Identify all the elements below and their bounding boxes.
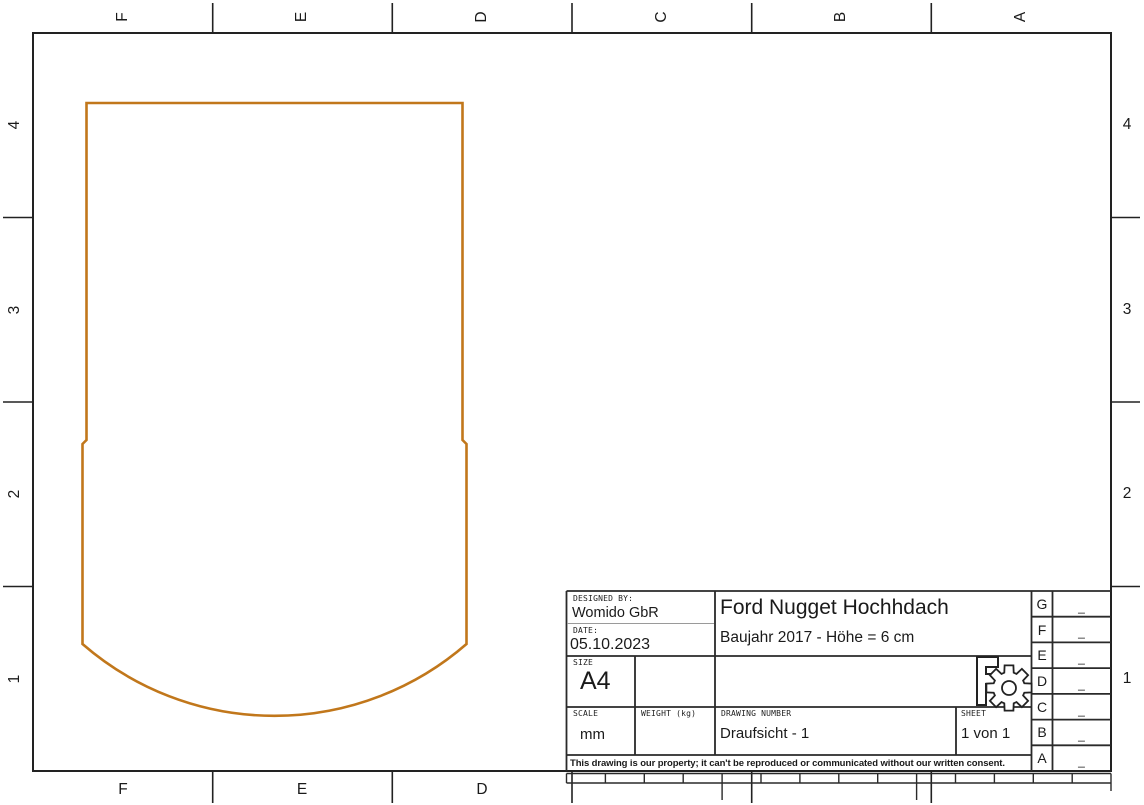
revision-row-dash: _ <box>1053 720 1111 746</box>
revision-row-dash: _ <box>1053 694 1111 720</box>
date-label: DATE: <box>573 627 598 635</box>
zone-label-top: F <box>110 4 136 30</box>
revision-row-dash: _ <box>1053 617 1111 643</box>
zone-label-top: E <box>289 4 315 30</box>
revision-row-letter: F <box>1032 617 1053 643</box>
zone-label-bottom: F <box>110 777 136 803</box>
zone-label-top: D <box>469 4 495 30</box>
date-value: 05.10.2023 <box>570 637 650 653</box>
zone-label-left: 3 <box>2 297 28 323</box>
revision-row-dash: _ <box>1053 668 1111 694</box>
revision-row-dash: _ <box>1053 642 1111 668</box>
frame-border <box>33 33 1111 771</box>
weight-label: WEIGHT (kg) <box>641 710 696 718</box>
zone-label-left: 2 <box>2 481 28 507</box>
roof-outline-path <box>83 103 467 716</box>
revision-row-dash: _ <box>1053 745 1111 771</box>
zone-label-left: 1 <box>2 666 28 692</box>
revision-row-letter: B <box>1032 720 1053 746</box>
logo-gear-hole <box>1002 681 1016 695</box>
revision-row-letter: C <box>1032 694 1053 720</box>
drawing-number-value: Draufsicht - 1 <box>720 726 809 741</box>
drawing-sheet: F E D C B A F E D 4 3 2 1 4 3 2 1 DESIGN… <box>0 0 1144 805</box>
drawing-number-label: DRAWING NUMBER <box>721 710 791 718</box>
drawing-title: Ford Nugget Hochhdach <box>720 597 949 618</box>
size-value: A4 <box>580 669 611 694</box>
revision-row-dash: _ <box>1053 591 1111 617</box>
sheet-label: SHEET <box>961 710 986 718</box>
size-label: SIZE <box>573 659 593 667</box>
zone-label-right: 2 <box>1114 481 1140 507</box>
designed-by-value: Womido GbR <box>572 606 659 621</box>
zone-label-right: 1 <box>1114 666 1140 692</box>
revision-row-letter: D <box>1032 668 1053 694</box>
zone-label-right: 4 <box>1114 112 1140 138</box>
sheet-value: 1 von 1 <box>961 726 1010 741</box>
zone-label-right: 3 <box>1114 297 1140 323</box>
drawing-canvas <box>0 0 1144 805</box>
revision-row-letter: A <box>1032 745 1053 771</box>
scale-value: mm <box>580 727 605 742</box>
scale-label: SCALE <box>573 710 598 718</box>
zone-ticks <box>3 3 1140 803</box>
zone-label-top: A <box>1008 4 1034 30</box>
zone-label-top: B <box>828 4 854 30</box>
ruler-strip <box>567 774 1112 801</box>
revision-row-letter: G <box>1032 591 1053 617</box>
disclaimer-text: This drawing is our property; it can't b… <box>570 759 1005 769</box>
zone-label-left: 4 <box>2 112 28 138</box>
zone-label-bottom: E <box>289 777 315 803</box>
zone-label-bottom: D <box>469 777 495 803</box>
zone-label-top: C <box>649 4 675 30</box>
freecad-logo-icon <box>977 657 1032 711</box>
designed-by-label: DESIGNED BY: <box>573 595 633 603</box>
revision-row-letter: E <box>1032 642 1053 668</box>
drawing-subtitle: Baujahr 2017 - Höhe = 6 cm <box>720 630 914 646</box>
